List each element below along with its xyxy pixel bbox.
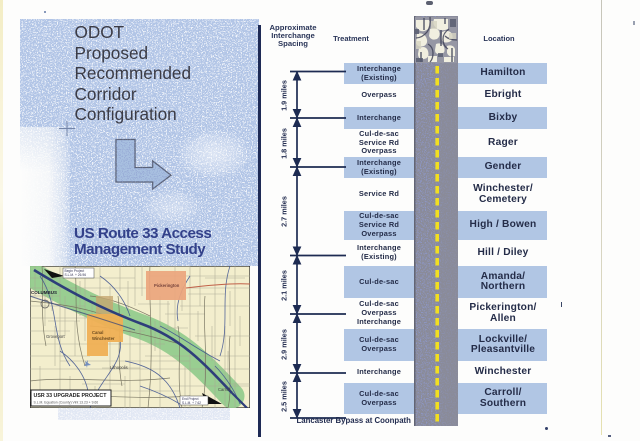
svg-text:Groveport: Groveport <box>46 334 65 339</box>
svg-text:S.L.M. Equation (County) Vint: S.L.M. Equation (County) Vint 13.23 + 9.… <box>34 401 99 405</box>
svg-text:Lithopolis: Lithopolis <box>110 365 128 370</box>
svg-text:S.L.M. + 7.62: S.L.M. + 7.62 <box>182 401 201 405</box>
svg-text:Pickerington: Pickerington <box>154 283 180 288</box>
svg-text:Winchester: Winchester <box>92 336 115 341</box>
svg-text:Carroll: Carroll <box>218 387 230 392</box>
svg-text:S.L.M. + 26.96: S.L.M. + 26.96 <box>65 273 87 277</box>
svg-text:USR 33 UPGRADE PROJECT: USR 33 UPGRADE PROJECT <box>34 393 108 399</box>
svg-text:Canal: Canal <box>92 330 103 335</box>
svg-text:COLUMBUS: COLUMBUS <box>31 290 57 295</box>
